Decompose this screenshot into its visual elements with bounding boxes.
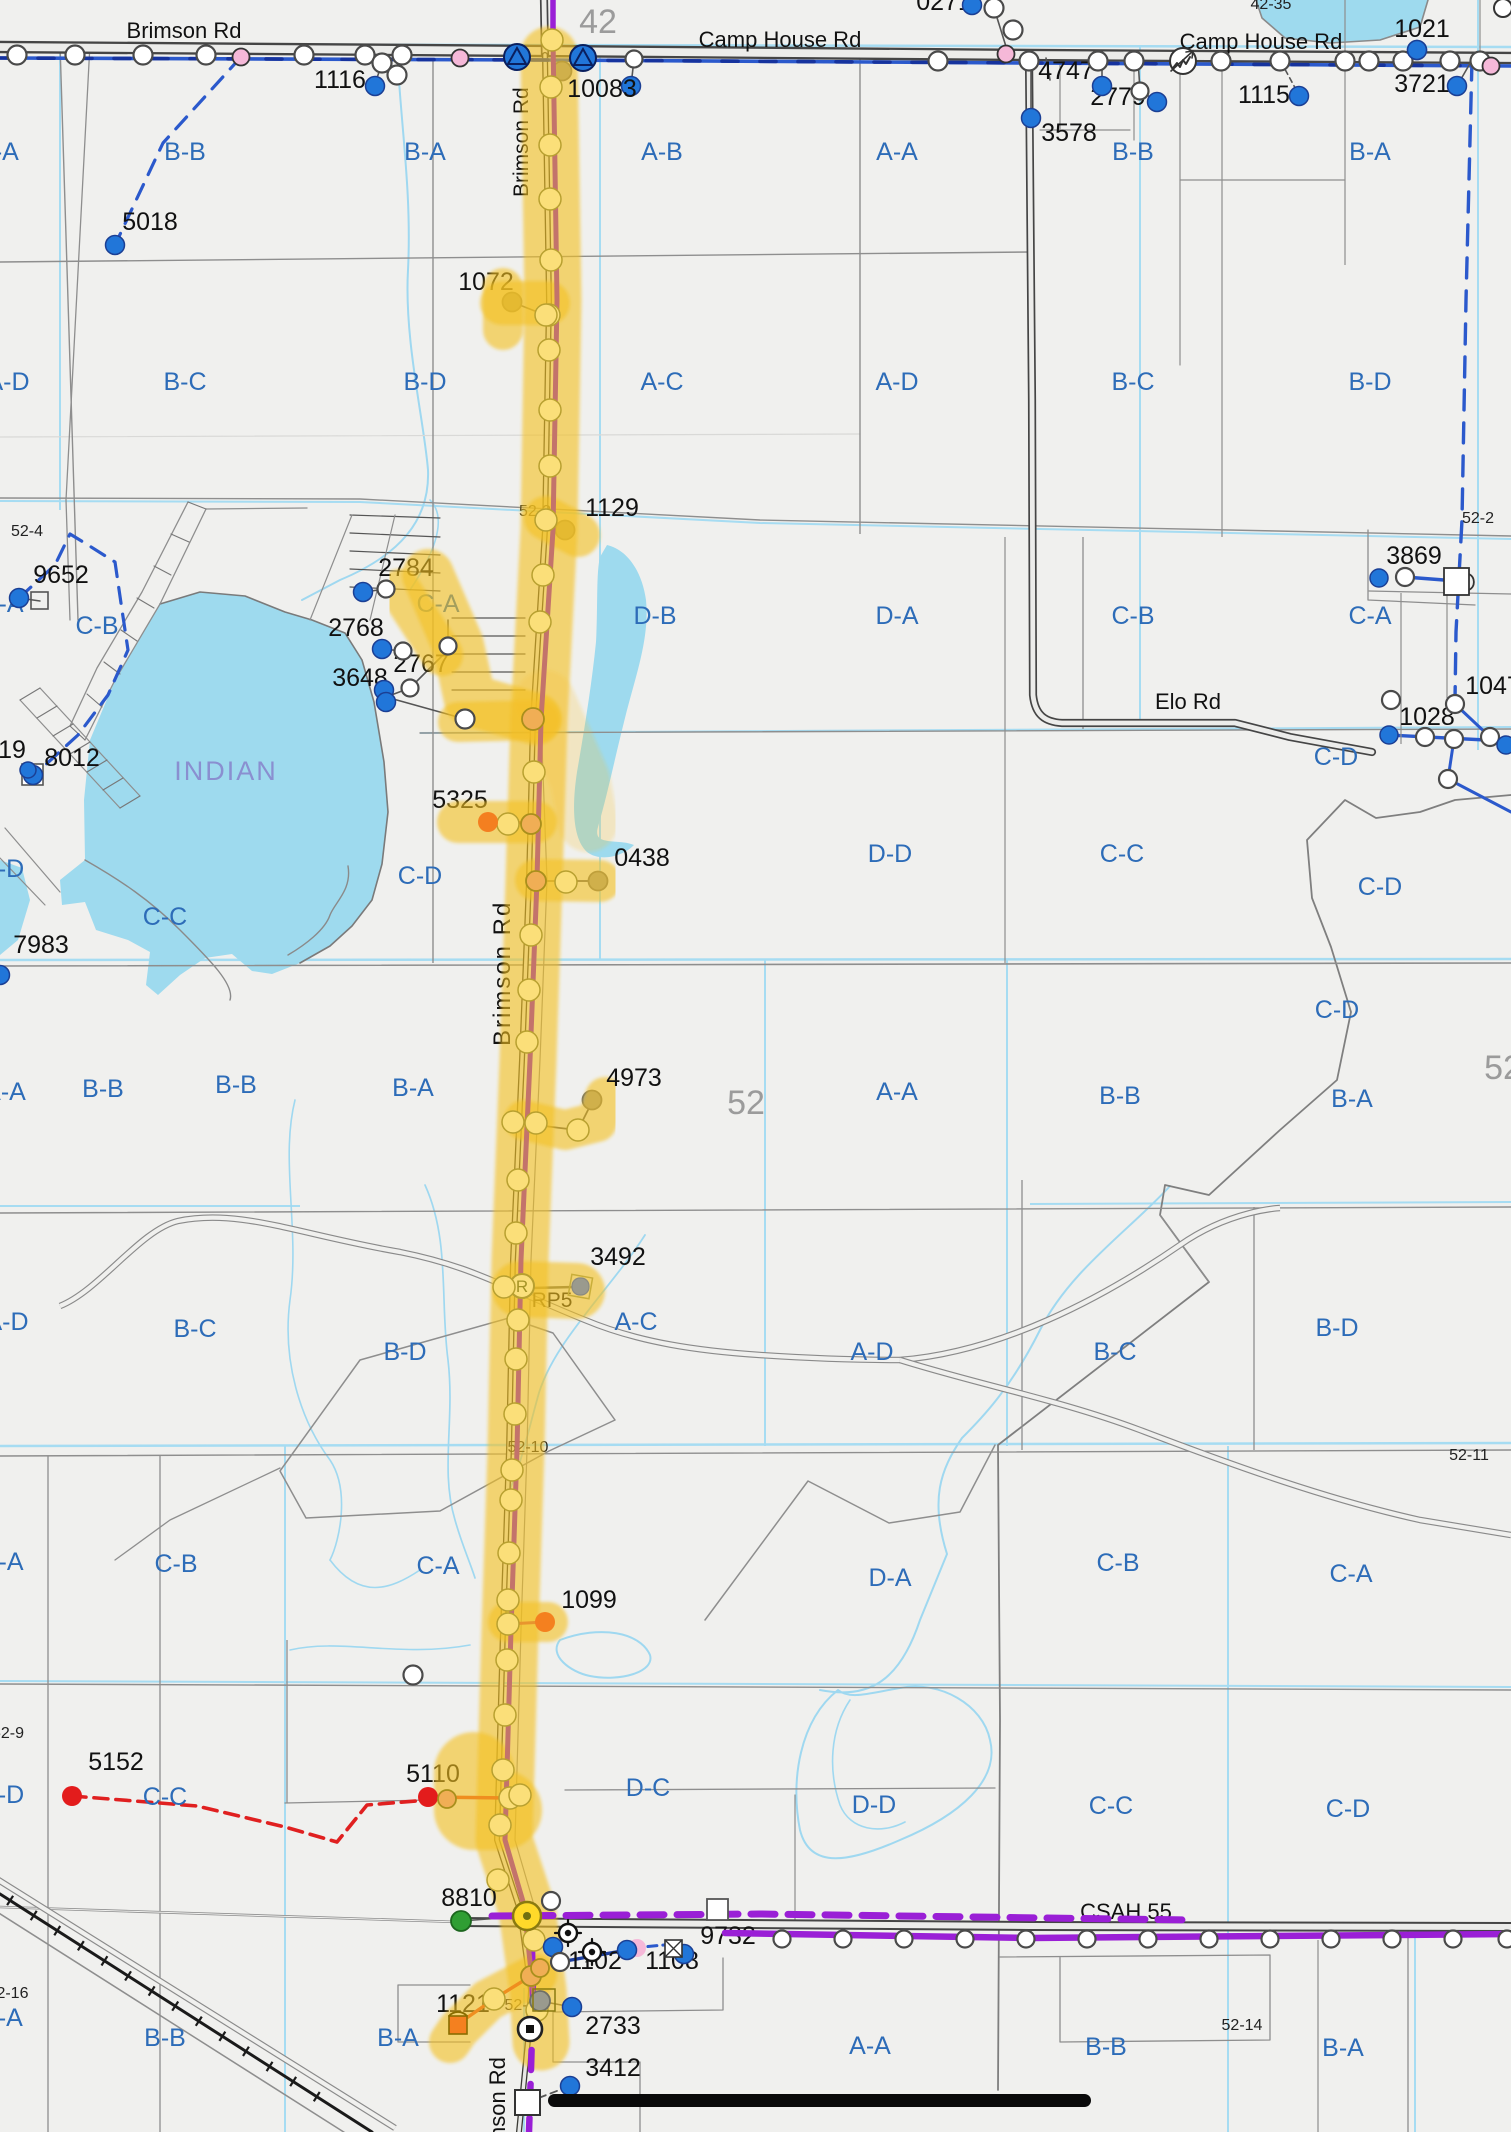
svg-text:A-A: A-A [0,1078,26,1106]
svg-text:B-C: B-C [1111,368,1154,396]
svg-text:1116: 1116 [314,66,366,94]
svg-text:5018: 5018 [122,208,178,236]
svg-text:C-A: C-A [1348,602,1391,630]
svg-text:C-C: C-C [1089,1792,1133,1820]
svg-text:52: 52 [727,1084,765,1122]
svg-text:8810: 8810 [441,1884,497,1912]
svg-text:10083: 10083 [567,75,637,103]
svg-text:C-C: C-C [1100,840,1144,868]
svg-text:B-D: B-D [1315,1314,1358,1342]
svg-text:3492: 3492 [590,1243,646,1271]
svg-text:D-A: D-A [868,1564,911,1592]
svg-text:4973: 4973 [606,1064,662,1092]
svg-text:A-A: A-A [0,138,19,166]
svg-text:A-A: A-A [849,2032,891,2060]
svg-text:Camp House Rd: Camp House Rd [699,27,862,52]
svg-text:B-A: B-A [392,1074,434,1102]
svg-text:19: 19 [0,736,26,764]
svg-text:B-B: B-B [144,2024,186,2052]
svg-text:D-A: D-A [875,602,918,630]
svg-text:A-A: A-A [876,138,918,166]
svg-text:C-B: C-B [154,1550,197,1578]
svg-text:Brimson Rd: Brimson Rd [127,18,242,43]
svg-text:C-B: C-B [1096,1549,1139,1577]
svg-text:2768: 2768 [328,614,384,642]
svg-text:A-C: A-C [614,1308,657,1336]
svg-text:3721: 3721 [1394,70,1450,98]
svg-text:3869: 3869 [1386,542,1442,570]
svg-text:0438: 0438 [614,844,670,872]
svg-text:B-A: B-A [404,138,446,166]
svg-text:A-D: A-D [850,1338,893,1366]
svg-text:B-B: B-B [164,138,206,166]
svg-text:A-D: A-D [0,1308,29,1336]
svg-text:1047: 1047 [1465,672,1511,700]
svg-text:B-A: B-A [0,2004,23,2032]
svg-text:B-D: B-D [383,1338,426,1366]
svg-text:B-A: B-A [1349,138,1391,166]
svg-text:B-A: B-A [377,2024,419,2052]
svg-text:B-A: B-A [1331,1085,1373,1113]
svg-text:7983: 7983 [13,931,69,959]
svg-text:C-C: C-C [143,903,187,931]
svg-text:9652: 9652 [33,561,89,589]
svg-text:D-D: D-D [0,855,24,883]
svg-text:52: 52 [1484,1049,1511,1087]
svg-text:52-9: 52-9 [0,1725,24,1742]
svg-text:D-D: D-D [868,840,912,868]
svg-text:D-B: D-B [633,602,676,630]
svg-text:1129: 1129 [585,494,639,522]
svg-text:C-D: C-D [1315,996,1359,1024]
svg-text:B-D: B-D [1348,368,1391,396]
svg-text:A-D: A-D [875,368,918,396]
svg-text:2733: 2733 [585,2012,641,2040]
svg-text:A-A: A-A [876,1078,918,1106]
svg-text:R: R [516,1277,528,1296]
svg-text:3412: 3412 [585,2054,641,2082]
svg-text:C-A: C-A [416,1552,459,1580]
svg-text:Camp House Rd: Camp House Rd [1180,29,1343,54]
svg-text:1021: 1021 [1394,15,1450,43]
svg-text:D-C: D-C [626,1774,670,1802]
svg-text:B-B: B-B [82,1075,124,1103]
svg-text:C-D: C-D [1358,873,1402,901]
svg-text:C-B: C-B [1111,602,1154,630]
svg-text:52-16: 52-16 [0,1985,29,2002]
svg-text:B-C: B-C [173,1315,216,1343]
svg-text:52-2: 52-2 [1462,510,1494,527]
svg-text:A-C: A-C [640,368,683,396]
svg-text:B-C: B-C [1093,1338,1136,1366]
svg-text:4747: 4747 [1038,57,1094,85]
svg-text:42-35: 42-35 [1251,0,1292,13]
svg-text:B-A: B-A [1322,2034,1364,2062]
svg-text:1099: 1099 [561,1586,617,1614]
svg-text:8012: 8012 [44,744,100,772]
svg-text:C-D: C-D [1326,1795,1370,1823]
svg-text:C-D: C-D [398,862,442,890]
svg-text:INDIAN: INDIAN [174,756,278,786]
svg-text:D-D: D-D [0,1781,24,1809]
svg-text:42: 42 [579,3,617,41]
svg-text:B-C: B-C [163,368,206,396]
svg-text:B-B: B-B [1112,138,1154,166]
svg-text:52-14: 52-14 [1222,2017,1263,2034]
svg-text:B-D: B-D [403,368,446,396]
svg-text:C-D: C-D [1314,743,1358,771]
svg-text:C-C: C-C [143,1783,187,1811]
svg-text:Elo Rd: Elo Rd [1155,689,1221,714]
svg-text:A-B: A-B [641,138,683,166]
svg-text:Brimson Rd: Brimson Rd [485,2057,510,2132]
svg-text:C-A: C-A [1329,1560,1372,1588]
svg-text:1115: 1115 [1238,81,1290,109]
svg-text:52-11: 52-11 [1449,1447,1489,1464]
svg-text:3578: 3578 [1041,119,1097,147]
svg-text:5152: 5152 [88,1748,144,1776]
svg-text:D-A: D-A [0,1548,24,1576]
svg-text:52-4: 52-4 [11,523,43,540]
svg-text:A-D: A-D [0,368,30,396]
svg-text:B-B: B-B [1085,2033,1127,2061]
svg-text:B-B: B-B [215,1071,257,1099]
svg-text:D-D: D-D [852,1791,896,1819]
svg-text:C-B: C-B [75,612,118,640]
svg-text:B-B: B-B [1099,1082,1141,1110]
